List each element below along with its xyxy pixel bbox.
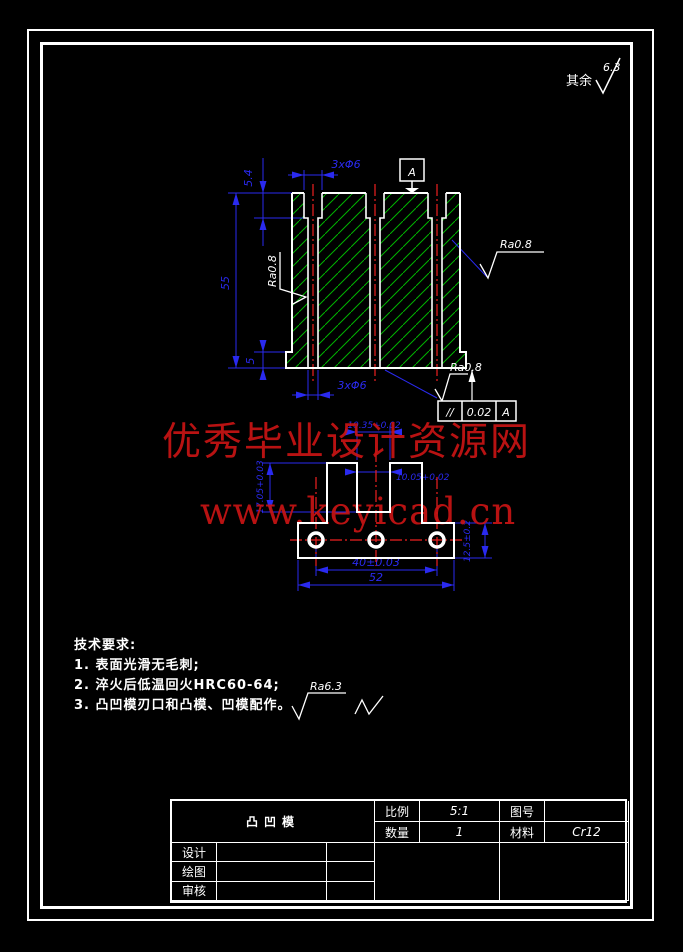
- svg-text:Ra0.8: Ra0.8: [450, 361, 482, 374]
- fcf-tolerance: 0.02: [467, 406, 492, 419]
- svg-text:Ra6.3: Ra6.3: [310, 680, 342, 693]
- title-block-empty-right: [500, 843, 629, 901]
- sign-row-design-label: 设计: [172, 843, 217, 862]
- part-name: 凸凹模: [172, 801, 375, 843]
- roughness-symbol-right: Ra0.8: [480, 238, 544, 278]
- techreq-check-mark: [355, 696, 383, 714]
- scale-value: 5:1: [420, 801, 500, 822]
- qty-value: 1: [420, 822, 500, 843]
- techreq-item: 3. 凸凹模刃口和凸模、凹模配作。: [74, 696, 292, 716]
- scale-label: 比例: [375, 801, 420, 822]
- title-block: 凸凹模 比例 5:1 图号 数量 1 材料 Cr12 设计 绘图 审核: [170, 799, 627, 903]
- dim-overall-width: 52: [369, 571, 383, 584]
- feature-control-frame: // 0.02 A: [438, 370, 516, 421]
- technical-requirements: 技术要求: 1. 表面光滑无毛刺; 2. 淬火后低温回火HRC60-64; 3.…: [74, 636, 292, 716]
- techreq-roughness-symbol: Ra6.3: [292, 680, 346, 719]
- techreq-item: 1. 表面光滑无毛刺;: [74, 656, 292, 676]
- sign-row-draw-extra: [327, 862, 375, 881]
- cad-drawing-page: { "colors":{"background":"#000000","line…: [0, 0, 683, 952]
- datum-label: A: [407, 166, 416, 179]
- sign-row-check-value: [217, 882, 327, 901]
- svg-text:Ra0.8: Ra0.8: [266, 255, 279, 287]
- dim-step-height: 5: [244, 358, 257, 365]
- dim-top-holes: 3xΦ6: [331, 158, 360, 171]
- material-value: Cr12: [545, 822, 629, 843]
- title-block-empty-left: [375, 843, 500, 901]
- sign-row-draw-value: [217, 862, 327, 881]
- dim-overall-height: 55: [219, 276, 232, 290]
- qty-label: 数量: [375, 822, 420, 843]
- drawing-no-label: 图号: [500, 801, 545, 822]
- sign-row-design-value: [217, 843, 327, 862]
- sign-row-design-extra: [327, 843, 375, 862]
- fcf-symbol: //: [445, 406, 455, 419]
- datum-flag: A: [400, 159, 424, 193]
- sign-row-check-extra: [327, 882, 375, 901]
- techreq-title: 技术要求:: [74, 636, 292, 656]
- general-note-value: 6.3: [603, 61, 621, 74]
- dim-counterbore-depth: 5.4: [242, 169, 255, 187]
- watermark-line1: 优秀毕业设计资源网: [162, 420, 531, 465]
- dim-bottom-holes: 3xΦ6: [337, 379, 366, 392]
- general-note-prefix: 其余: [566, 73, 592, 89]
- fcf-datum: A: [501, 406, 510, 419]
- general-roughness-note: 其余 6.3: [566, 58, 621, 93]
- drawing-no-value: [545, 801, 629, 822]
- sign-row-check-label: 审核: [172, 882, 217, 901]
- sign-row-draw-label: 绘图: [172, 862, 217, 881]
- svg-text:Ra0.8: Ra0.8: [500, 238, 532, 251]
- material-label: 材料: [500, 822, 545, 843]
- techreq-item: 2. 淬火后低温回火HRC60-64;: [74, 676, 292, 696]
